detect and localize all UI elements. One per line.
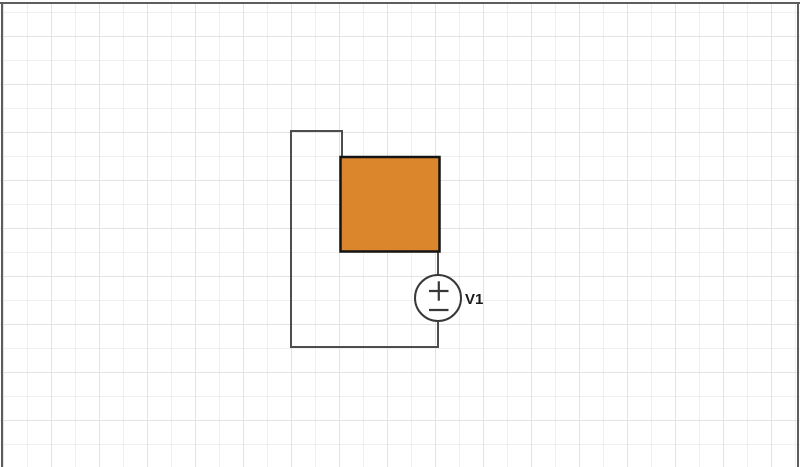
- diagram-layer: V1: [0, 0, 800, 467]
- orange-box-shape[interactable]: [341, 157, 440, 252]
- voltage-source[interactable]: V1: [415, 275, 483, 321]
- diagram-canvas[interactable]: V1: [0, 0, 800, 467]
- voltage-source-label: V1: [465, 291, 483, 308]
